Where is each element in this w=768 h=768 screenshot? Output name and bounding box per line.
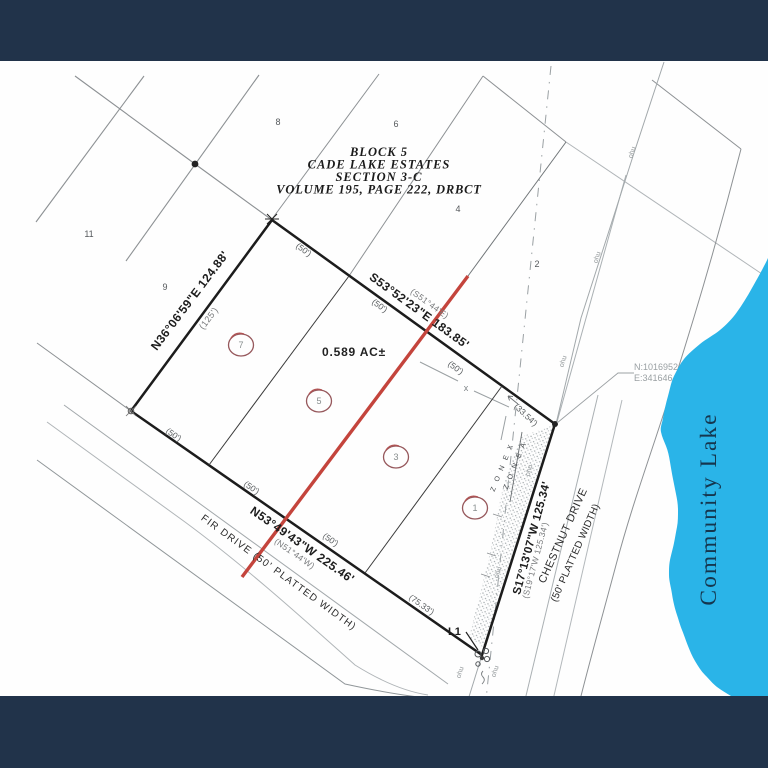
svg-text:8: 8 (275, 117, 280, 127)
svg-text:9: 9 (162, 282, 167, 292)
svg-text:L1: L1 (448, 626, 461, 638)
svg-text:2: 2 (534, 259, 539, 269)
svg-text:Community Lake: Community Lake (696, 412, 722, 605)
svg-text:x: x (464, 383, 469, 393)
svg-text:3: 3 (393, 452, 398, 462)
svg-text:0.589 AC±: 0.589 AC± (322, 345, 386, 359)
svg-text:4: 4 (455, 204, 460, 214)
svg-text:E:341646: E:341646 (634, 373, 673, 383)
svg-text:VOLUME 195, PAGE 222, DRBCT: VOLUME 195, PAGE 222, DRBCT (276, 183, 482, 197)
svg-text:5: 5 (316, 396, 321, 406)
svg-text:7: 7 (238, 340, 243, 350)
svg-text:N:1016952: N:1016952 (634, 362, 678, 372)
svg-text:1: 1 (472, 503, 477, 513)
svg-text:6: 6 (393, 119, 398, 129)
svg-text:11: 11 (84, 229, 93, 239)
